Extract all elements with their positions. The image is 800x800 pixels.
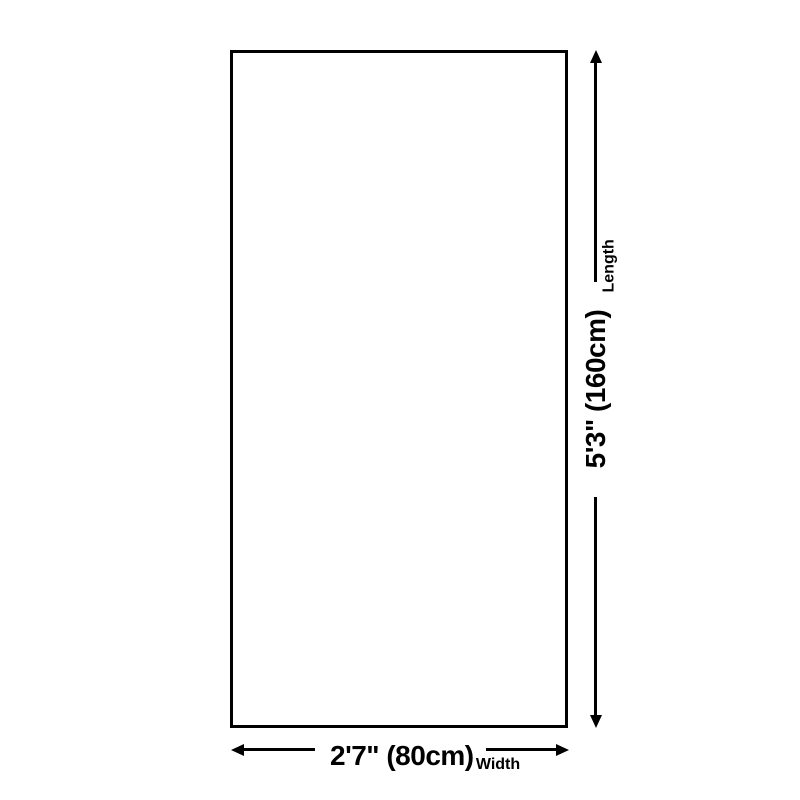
- width-value-label: 2'7" (80cm): [330, 742, 470, 770]
- arrow-right-icon: [556, 744, 569, 756]
- width-dimension-line-left: [243, 748, 315, 751]
- length-axis-label: Length: [601, 245, 618, 293]
- arrow-down-icon: [590, 715, 602, 728]
- width-dimension-line-right: [486, 748, 557, 751]
- length-dimension-line-upper: [594, 61, 597, 282]
- length-dimension-line-lower: [594, 497, 597, 716]
- dimension-diagram: Length 5'3" (160cm) 2'7" (80cm) Width: [0, 0, 800, 800]
- length-value-label: 5'3" (160cm): [581, 304, 611, 474]
- product-rectangle: [230, 50, 568, 728]
- width-axis-label: Width: [473, 756, 523, 773]
